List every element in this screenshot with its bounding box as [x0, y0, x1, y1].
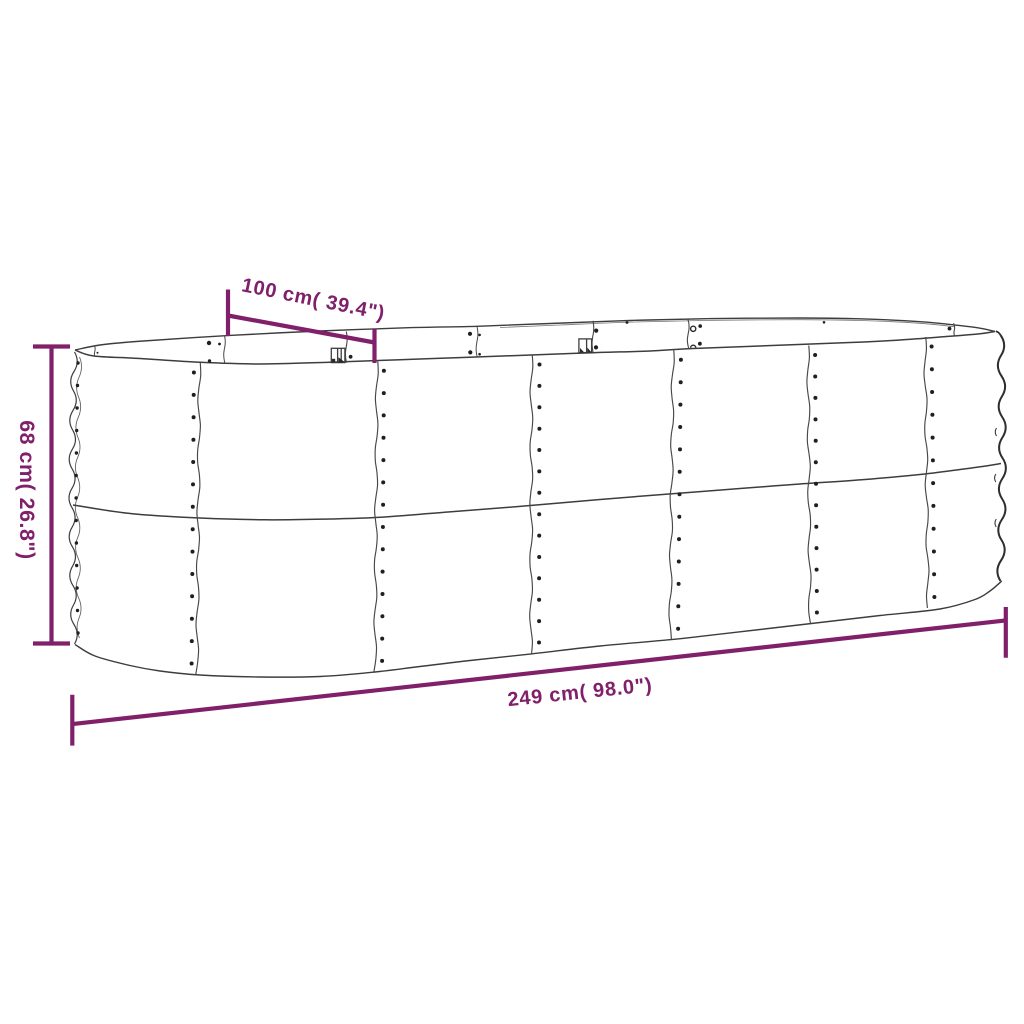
svg-text:68 cm( 26.8"): 68 cm( 26.8"): [15, 420, 39, 560]
